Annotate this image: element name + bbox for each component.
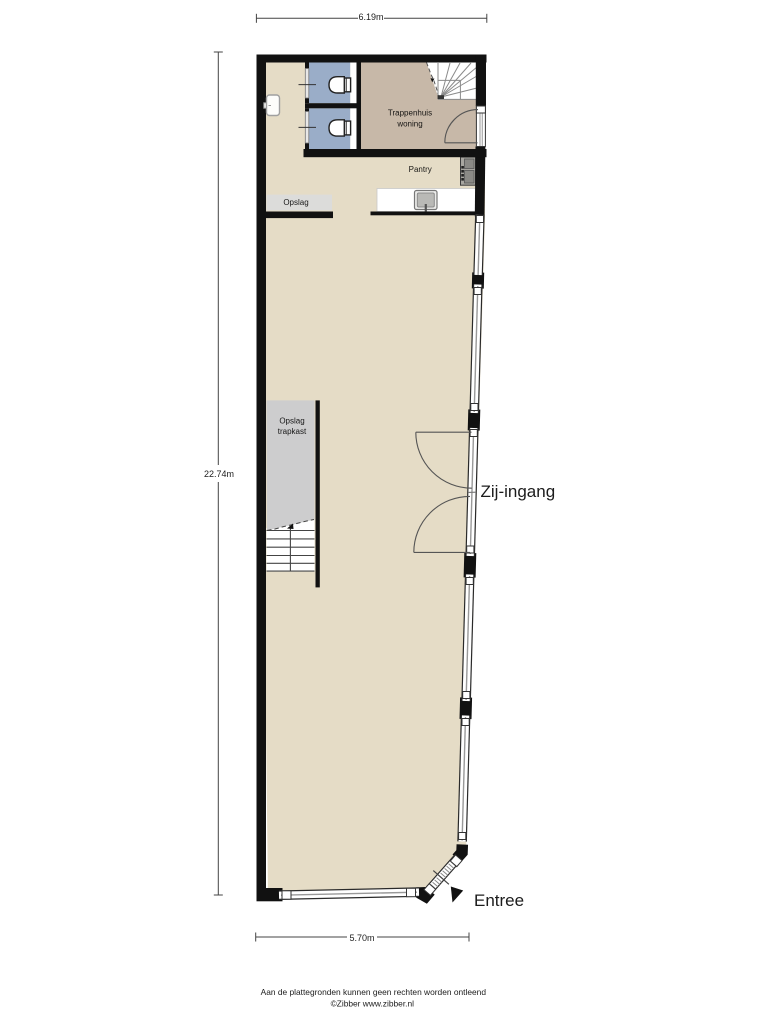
svg-text:trapkast: trapkast	[278, 427, 307, 436]
svg-text:©Zibber www.zibber.nl: ©Zibber www.zibber.nl	[331, 998, 415, 1008]
svg-text:22.74m: 22.74m	[204, 469, 234, 479]
svg-text:Entree: Entree	[474, 891, 524, 910]
svg-text:5.70m: 5.70m	[349, 933, 374, 943]
svg-text:6.19m: 6.19m	[358, 12, 383, 22]
svg-text:Pantry: Pantry	[409, 165, 432, 174]
svg-text:Aan de plattegronden kunnen ge: Aan de plattegronden kunnen geen rechten…	[261, 987, 487, 997]
svg-text:Opslag: Opslag	[279, 417, 304, 426]
svg-text:Zij-ingang: Zij-ingang	[481, 482, 556, 501]
svg-text:Opslag: Opslag	[283, 198, 308, 207]
svg-text:woning: woning	[396, 119, 422, 128]
svg-text:Trappenhuis: Trappenhuis	[388, 109, 432, 118]
